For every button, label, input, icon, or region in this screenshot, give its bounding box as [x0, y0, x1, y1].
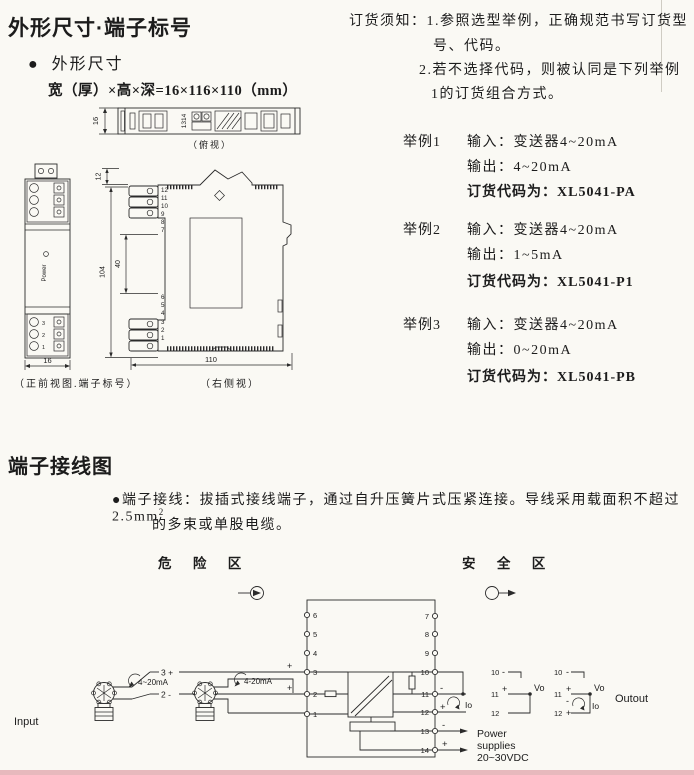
- top-view-body: 1314: [118, 108, 300, 134]
- tapc-12: 12: [554, 709, 562, 718]
- ordering-notice-line2: 号、代码。: [433, 40, 511, 54]
- term-8: 8: [425, 630, 429, 639]
- tapc-11-plus: +: [566, 684, 571, 694]
- wiring-note-line2: 的多束或单股电缆。: [152, 519, 292, 533]
- tapb-10: 10: [491, 668, 499, 677]
- dim-40: 40: [115, 235, 158, 294]
- side-terminal-block-top: [129, 186, 158, 218]
- tapc-10: 10: [554, 668, 562, 677]
- wiring-diagram: 6 5 4 3 2 1 7 8 9 10 11 12 13 14: [0, 545, 694, 775]
- term-4: 4: [313, 649, 317, 658]
- side-term-12: 12: [161, 187, 168, 194]
- term-2: 2: [313, 690, 317, 699]
- ordering-notice-line3: 2.若不选择代码，则被认同是下列举例: [419, 64, 681, 78]
- side-term-2: 2: [161, 327, 165, 334]
- subsection-label: 外形尺寸: [52, 56, 124, 73]
- input-label: Input: [14, 716, 38, 728]
- section-title-wiring: 端子接线图: [8, 450, 113, 479]
- ordering-notice-line1: 订货须知：1.参照选型举例，正确规范书写订货型: [349, 15, 688, 29]
- signal-out-icon: [486, 587, 517, 600]
- example-3-input: 输入：变送器4~20mA: [467, 314, 619, 334]
- power-label-3: 20~30VDC: [477, 752, 529, 764]
- caption-side-view: （右侧视）: [200, 375, 260, 390]
- term-3: 3: [313, 668, 317, 677]
- power-led-label: Power: [42, 264, 48, 281]
- input-resistor: [325, 691, 336, 697]
- side-term-1: 1: [161, 335, 165, 342]
- dimension-formula: 宽（厚）×高×深=16×116×110（mm）: [48, 79, 297, 100]
- term-13: 13: [421, 727, 429, 736]
- section-title-dimensions: 外形尺寸·端子标号: [8, 12, 192, 42]
- label-terminal-3-plus: 3 +: [161, 668, 173, 678]
- power-label-2: supplies: [477, 740, 516, 752]
- dim-40-label: 40: [115, 260, 122, 268]
- polarity-plus-line2: +: [287, 683, 292, 693]
- side-term-9: 9: [161, 211, 165, 218]
- caption-front-view: （正前视图.端子标号）: [14, 375, 139, 390]
- polarity-plus-line3: +: [287, 661, 292, 671]
- side-term-3: 3: [161, 319, 165, 326]
- power-label-1: Power: [477, 728, 507, 740]
- label-area: [190, 218, 242, 308]
- io-label-c: Io: [592, 701, 599, 711]
- bullet-icon: ●: [112, 493, 122, 508]
- polarity-plus-12: +: [440, 702, 446, 713]
- front-term-3: 3: [42, 321, 45, 327]
- power-supply-leads: - + Power supplies 20~30VDC: [438, 720, 530, 764]
- term-9: 9: [425, 649, 429, 658]
- subsection-outline-dims: ● 外形尺寸: [28, 50, 124, 74]
- tapc-11-minus: -: [566, 696, 569, 706]
- loop-1-label: 4~20mA: [138, 678, 169, 687]
- ordering-notice-line4: 1的订货组合方式。: [431, 88, 564, 102]
- io-label-a: Io: [465, 700, 472, 710]
- wiring-note-sup: 2: [159, 507, 165, 517]
- front-term-1: 1: [42, 345, 45, 351]
- output-tap-b: 10 - 11 + Vo 12: [491, 667, 545, 718]
- side-term-6: 6: [161, 294, 165, 301]
- output-tap-c: 10 - 11 + - Vo 12 + Io: [554, 667, 605, 718]
- side-term-4: 4: [161, 310, 165, 317]
- signal-in-icon: [238, 587, 264, 600]
- vo-label-c: Vo: [594, 683, 605, 693]
- dim-104-label: 104: [100, 266, 107, 278]
- dim-110-label: 110: [205, 355, 217, 364]
- dim-12: 12: [96, 169, 129, 185]
- front-view-drawing: Power 3 2 1 16: [12, 162, 92, 374]
- example-1-input: 输入：变送器4~20mA: [467, 131, 619, 151]
- tapb-12: 12: [491, 709, 499, 718]
- dim-110: 110: [131, 353, 292, 370]
- side-terminal-block-bottom: [129, 319, 158, 351]
- tapc-11: 11: [554, 690, 562, 699]
- example-3-output: 输出：0~20mA: [467, 339, 572, 359]
- label-terminal-2-minus: 2 -: [161, 690, 171, 700]
- caption-top-view: （俯视）: [188, 138, 232, 151]
- front-top-connector: [35, 164, 57, 178]
- tapc-10-minus: -: [566, 667, 569, 677]
- example-2-code: 订货代码为：XL5041-P1: [467, 271, 634, 291]
- term-14: 14: [421, 746, 429, 755]
- dim-12-label: 12: [96, 173, 103, 181]
- example-3-label: 举例3: [403, 314, 441, 334]
- isolation-barrier-symbol: [348, 672, 393, 717]
- side-view-drawing: 12 104 40: [95, 162, 310, 374]
- dim-16-front-label: 16: [43, 356, 51, 365]
- side-term-10: 10: [161, 203, 168, 210]
- side-body-outline: [158, 170, 291, 351]
- tapb-10-minus: -: [502, 667, 505, 677]
- vo-label-b: Vo: [534, 683, 545, 693]
- tapb-11-plus: +: [502, 684, 507, 694]
- top-view-terminal-numbers: 1314: [181, 113, 188, 128]
- example-1-label: 举例1: [403, 131, 441, 151]
- tapb-11: 11: [491, 690, 499, 699]
- polarity-minus-13: -: [442, 720, 445, 731]
- term-10: 10: [421, 668, 429, 677]
- polarity-minus-11: -: [440, 683, 443, 694]
- term-6: 6: [313, 611, 317, 620]
- dim-16-top: 16: [91, 108, 119, 134]
- term-1: 1: [313, 710, 317, 719]
- transmitter-2-icon: [193, 679, 294, 721]
- polarity-plus-14: +: [442, 739, 448, 750]
- term-7: 7: [425, 612, 429, 621]
- tapc-12-plus: +: [566, 708, 571, 718]
- side-term-8: 8: [161, 219, 165, 226]
- output-tap-a: - + Io: [438, 672, 473, 713]
- output-label: Outout: [615, 693, 648, 705]
- side-term-11: 11: [161, 195, 168, 202]
- example-2-output: 输出：1~5mA: [467, 244, 564, 264]
- document-page: 外形尺寸·端子标号 ● 外形尺寸 宽（厚）×高×深=16×116×110（mm）…: [0, 0, 694, 775]
- term-5: 5: [313, 630, 317, 639]
- term-12: 12: [421, 708, 429, 717]
- front-term-2: 2: [42, 333, 45, 339]
- dim-16-top-label: 16: [91, 117, 100, 125]
- diamond-mark-icon: [215, 191, 225, 201]
- side-term-5: 5: [161, 302, 165, 309]
- example-1-output: 输出：4~20mA: [467, 156, 572, 176]
- example-1-code: 订货代码为：XL5041-PA: [467, 181, 636, 201]
- term-11: 11: [421, 690, 429, 699]
- example-2-label: 举例2: [403, 219, 441, 239]
- side-term-7: 7: [161, 227, 165, 234]
- example-2-input: 输入：变送器4~20mA: [467, 219, 619, 239]
- example-3-code: 订货代码为：XL5041-PB: [467, 366, 636, 386]
- loop-2-label: 4-20mA: [244, 677, 273, 686]
- bullet-icon: ●: [28, 56, 40, 73]
